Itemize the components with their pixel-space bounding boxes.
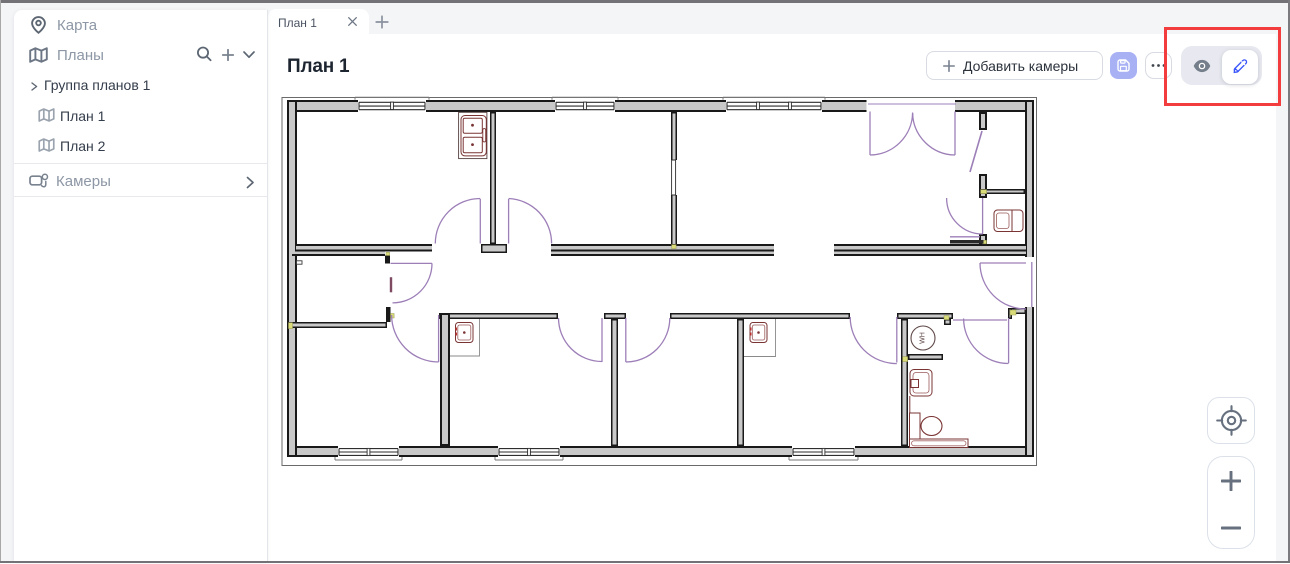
svg-text:WH: WH [920,332,927,344]
